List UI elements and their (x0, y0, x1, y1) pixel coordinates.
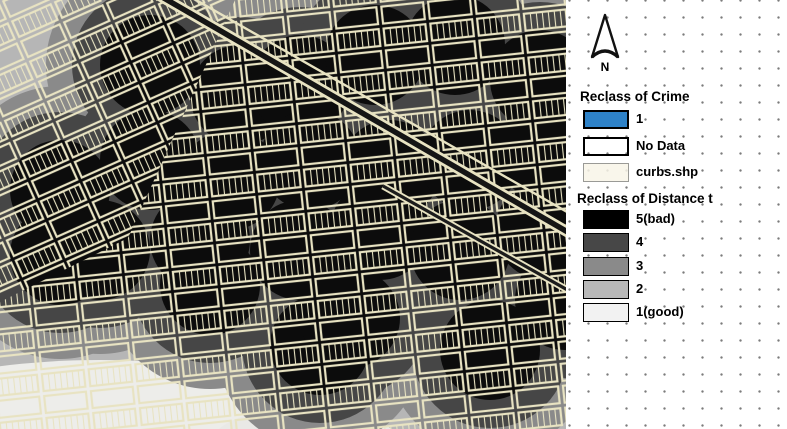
legend-label-nodata: No Data (636, 138, 685, 153)
legend-label-class2: 2 (636, 281, 643, 296)
legend-label-class5: 5(bad) (636, 211, 675, 226)
legend-swatch-crime-1 (583, 110, 629, 129)
legend-distance-title: Reclass of Distance t (577, 191, 713, 206)
legend-label-class3: 3 (636, 258, 643, 273)
north-arrow-label: N (584, 60, 626, 74)
legend-swatch-class4 (583, 233, 629, 252)
legend-label-curbs: curbs.shp (636, 164, 698, 179)
gis-layout-view: N Reclass of Crime 1 No Data curbs.shp R… (0, 0, 787, 429)
legend-label-class1: 1(good) (636, 304, 684, 319)
legend-swatch-class5 (583, 210, 629, 229)
legend-swatch-class2 (583, 280, 629, 299)
legend-label-crime-1: 1 (636, 111, 643, 126)
map-graphic (0, 0, 566, 429)
legend-swatch-class3 (583, 257, 629, 276)
north-arrow[interactable]: N (584, 12, 630, 78)
legend-crime-title: Reclass of Crime (580, 89, 690, 104)
legend-swatch-curbs (583, 163, 629, 182)
legend-label-class4: 4 (636, 234, 643, 249)
map-canvas[interactable] (0, 0, 566, 429)
curbs-street-layer (0, 0, 566, 429)
legend-swatch-nodata (583, 137, 629, 156)
layout-panel: N Reclass of Crime 1 No Data curbs.shp R… (566, 0, 787, 429)
legend-swatch-class1 (583, 303, 629, 322)
north-arrow-icon (584, 12, 630, 62)
